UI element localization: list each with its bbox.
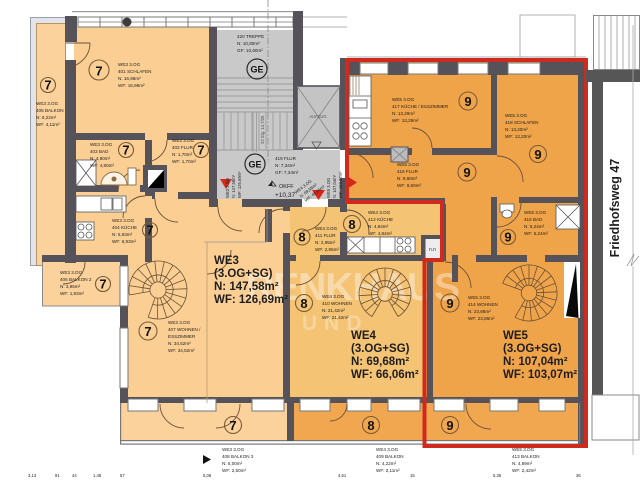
svg-text:7: 7 [44, 78, 51, 93]
svg-text:WF: 2,50m²: WF: 2,50m² [222, 468, 246, 473]
svg-text:WF: 2,95m²: WF: 2,95m² [315, 247, 339, 252]
svg-text:4,61: 4,61 [338, 473, 347, 478]
svg-text:WE3 3.OG: WE3 3.OG [118, 62, 141, 67]
svg-text:WF: 4,80m²: WF: 4,80m² [90, 163, 114, 168]
svg-text:WF: 6,93m²: WF: 6,93m² [112, 239, 136, 244]
svg-text:N: 5,24m²: N: 5,24m² [524, 224, 545, 229]
svg-text:9: 9 [446, 418, 453, 433]
svg-text:WE5 3.OG: WE5 3.OG [468, 295, 491, 300]
svg-text:412 KÜCHE: 412 KÜCHE [368, 216, 393, 222]
svg-text:WE3 3.OG: WE3 3.OG [60, 270, 83, 275]
svg-text:N: 147,58m²: N: 147,58m² [231, 174, 236, 198]
svg-text:WE5: WE5 [503, 330, 529, 342]
svg-text:405 BALKON: 405 BALKON [36, 108, 64, 113]
svg-text:N: 7,34m²: N: 7,34m² [275, 163, 296, 168]
svg-text:N: 34,52m²: N: 34,52m² [168, 341, 191, 346]
svg-text:WE4 3.OG: WE4 3.OG [322, 294, 345, 299]
svg-text:(3.OG+SG): (3.OG+SG) [214, 268, 273, 280]
svg-text:N: 8,22m²: N: 8,22m² [36, 115, 57, 120]
svg-text:OKFF: OKFF [279, 184, 294, 190]
svg-text:WE3 3.OG: WE3 3.OG [36, 101, 59, 106]
svg-text:N: 10,80m²: N: 10,80m² [237, 41, 260, 46]
svg-text:WF: 13,20m²: WF: 13,20m² [505, 134, 532, 139]
svg-text:7: 7 [144, 324, 151, 339]
svg-text:8: 8 [298, 230, 305, 245]
svg-text:N: 107,04m²: N: 107,04m² [332, 174, 337, 198]
svg-text:N: 147,58m²: N: 147,58m² [214, 281, 279, 293]
svg-text:(3.OG+SG): (3.OG+SG) [503, 343, 562, 355]
svg-text:ESSZIMMER: ESSZIMMER [168, 334, 196, 339]
svg-text:408 BALKON 3: 408 BALKON 3 [222, 454, 254, 459]
svg-text:WF: 126,69m²: WF: 126,69m² [237, 171, 242, 198]
svg-text:419 FLUR: 419 FLUR [275, 156, 297, 161]
svg-text:N: 107,04m²: N: 107,04m² [503, 356, 568, 368]
svg-text:WE4 3.OG: WE4 3.OG [368, 210, 391, 215]
svg-text:GE: GE [250, 65, 263, 75]
svg-text:WE4 3.OG: WE4 3.OG [315, 226, 338, 231]
svg-text:n.n: n.n [429, 247, 436, 253]
svg-text:9: 9 [463, 165, 470, 180]
svg-text:57: 57 [120, 473, 125, 478]
svg-text:9: 9 [534, 147, 541, 162]
svg-text:407 WOHNEN /: 407 WOHNEN / [168, 327, 201, 332]
svg-text:WE3 3.OG: WE3 3.OG [222, 447, 245, 452]
svg-text:406 BALKON 2: 406 BALKON 2 [60, 277, 92, 282]
svg-text:WF: 2,11m²: WF: 2,11m² [376, 468, 400, 473]
svg-text:AUFZUG: AUFZUG [309, 114, 326, 119]
svg-text:9: 9 [464, 94, 471, 109]
svg-text:WE4 3.OG: WE4 3.OG [376, 447, 399, 452]
svg-text:WF: 5,24m²: WF: 5,24m² [524, 231, 548, 236]
svg-text:8: 8 [300, 296, 307, 311]
svg-text:WF: 4,11m²: WF: 4,11m² [36, 122, 60, 127]
svg-text:WE5 3.OG: WE5 3.OG [505, 113, 528, 118]
svg-text:N: 2,95m²: N: 2,95m² [315, 240, 336, 245]
svg-text:WF: 23,86m²: WF: 23,86m² [468, 316, 495, 321]
svg-text:N: 9,60m²: N: 9,60m² [397, 176, 418, 181]
svg-text:418 SCHLAFEN: 418 SCHLAFEN [505, 120, 538, 125]
svg-text:414 WOHNEN: 414 WOHNEN [468, 302, 498, 307]
svg-text:N: 4,84m²: N: 4,84m² [368, 224, 389, 229]
svg-text:WF: 103,07m²: WF: 103,07m² [503, 369, 577, 381]
svg-text:(3.OG+SG): (3.OG+SG) [351, 343, 410, 355]
svg-text:N: 6,93m²: N: 6,93m² [112, 232, 133, 237]
svg-text:WE3 3.OG: WE3 3.OG [172, 138, 195, 143]
svg-text:WF: 1,93m²: WF: 1,93m² [60, 291, 84, 296]
svg-text:N: 23,86m²: N: 23,86m² [468, 309, 491, 314]
svg-text:36: 36 [576, 473, 581, 478]
svg-text:417 KÜCHE / ESSZIMMER: 417 KÜCHE / ESSZIMMER [392, 103, 449, 109]
svg-text:WF: 1,70m²: WF: 1,70m² [172, 159, 196, 164]
svg-text:WE3 3.OG: WE3 3.OG [225, 178, 230, 198]
svg-text:9: 9 [446, 296, 453, 311]
svg-text:404 KÜCHE: 404 KÜCHE [112, 224, 137, 230]
svg-text:WE3 3.OG: WE3 3.OG [168, 320, 191, 325]
svg-text:15: 15 [410, 473, 415, 478]
svg-text:WF: 16,98m²: WF: 16,98m² [118, 83, 145, 88]
svg-text:N: 69,68m²: N: 69,68m² [351, 356, 409, 368]
svg-text:WF: 13,29m²: WF: 13,29m² [392, 118, 419, 123]
svg-text:N: 3,85m²: N: 3,85m² [60, 284, 81, 289]
svg-text:44: 44 [72, 473, 77, 478]
svg-text:413 BALKON: 413 BALKON [512, 454, 540, 459]
svg-text:1,48: 1,48 [93, 473, 102, 478]
svg-text:401 SCHLAFEN: 401 SCHLAFEN [118, 69, 151, 74]
svg-text:411 FLUR: 411 FLUR [315, 233, 336, 238]
svg-text:WE5 3.OG: WE5 3.OG [524, 210, 547, 215]
svg-text:7: 7 [122, 143, 129, 158]
svg-text:5,35: 5,35 [493, 473, 502, 478]
svg-text:409 BALKON: 409 BALKON [376, 454, 404, 459]
svg-text:7: 7 [99, 277, 106, 292]
svg-text:WE5 3.OG: WE5 3.OG [397, 162, 420, 167]
svg-text:WF: 2,42m²: WF: 2,42m² [512, 468, 536, 473]
svg-text:WE3 3.OG: WE3 3.OG [112, 218, 135, 223]
svg-text:9: 9 [504, 230, 511, 245]
svg-text:402 FLUR: 402 FLUR [172, 145, 194, 150]
svg-text:WE5 3.OG: WE5 3.OG [392, 97, 415, 102]
svg-text:WE5 3.OG: WE5 3.OG [326, 178, 331, 198]
svg-text:WF: 4,84m²: WF: 4,84m² [368, 231, 392, 236]
svg-text:420 TREPPE: 420 TREPPE [237, 34, 264, 39]
svg-text:5,06: 5,06 [203, 473, 212, 478]
svg-text:8: 8 [348, 217, 355, 232]
svg-text:WF: 21,42m²: WF: 21,42m² [322, 315, 349, 320]
svg-text:3,13: 3,13 [28, 473, 37, 478]
svg-text:N: 5,00m²: N: 5,00m² [222, 461, 243, 466]
svg-text:N: 13,20m²: N: 13,20m² [505, 127, 528, 132]
svg-text:Friedhofsweg 47: Friedhofsweg 47 [608, 159, 622, 258]
svg-text:7: 7 [229, 418, 236, 433]
svg-text:7: 7 [197, 143, 204, 158]
svg-text:7: 7 [95, 64, 102, 79]
svg-text:415 BAD: 415 BAD [524, 217, 543, 222]
svg-text:7: 7 [146, 223, 153, 238]
svg-text:GF: 7,34m²: GF: 7,34m² [275, 170, 299, 175]
svg-text:N: 1,70m²: N: 1,70m² [172, 152, 193, 157]
svg-text:WF: 9,60m²: WF: 9,60m² [397, 183, 421, 188]
svg-text:N: 16,98m²: N: 16,98m² [118, 76, 141, 81]
svg-text:403 BAD: 403 BAD [90, 149, 109, 154]
svg-text:GF: 10,60m²: GF: 10,60m² [237, 48, 263, 53]
svg-text:N: 13,29m²: N: 13,29m² [392, 111, 415, 116]
svg-text:WF: 66,06m²: WF: 66,06m² [351, 369, 419, 381]
svg-text:WF: 126,69m²: WF: 126,69m² [214, 294, 288, 306]
svg-text:410 WOHNEN: 410 WOHNEN [322, 301, 352, 306]
svg-text:+10,37: +10,37 [275, 192, 295, 199]
svg-text:N: 21,42m²: N: 21,42m² [322, 308, 345, 313]
svg-text:WE5 3.OG: WE5 3.OG [512, 447, 535, 452]
svg-text:N: 4,80m²: N: 4,80m² [90, 156, 111, 161]
svg-text:WF: 103,07m²: WF: 103,07m² [338, 171, 343, 198]
svg-text:N: 4,22m²: N: 4,22m² [376, 461, 397, 466]
svg-text:91: 91 [55, 473, 60, 478]
svg-text:N: 4,89m²: N: 4,89m² [512, 461, 533, 466]
svg-text:WE3: WE3 [214, 255, 239, 267]
svg-text:WE3 3.OG: WE3 3.OG [90, 142, 113, 147]
svg-text:8: 8 [367, 418, 374, 433]
svg-text:WE4: WE4 [351, 330, 377, 342]
svg-text:WF: 34,52m²: WF: 34,52m² [168, 348, 195, 353]
svg-text:22 Stg. 14,7/26: 22 Stg. 14,7/26 [260, 115, 265, 144]
svg-text:GE: GE [248, 160, 261, 170]
svg-text:416 FLUR: 416 FLUR [397, 169, 419, 174]
